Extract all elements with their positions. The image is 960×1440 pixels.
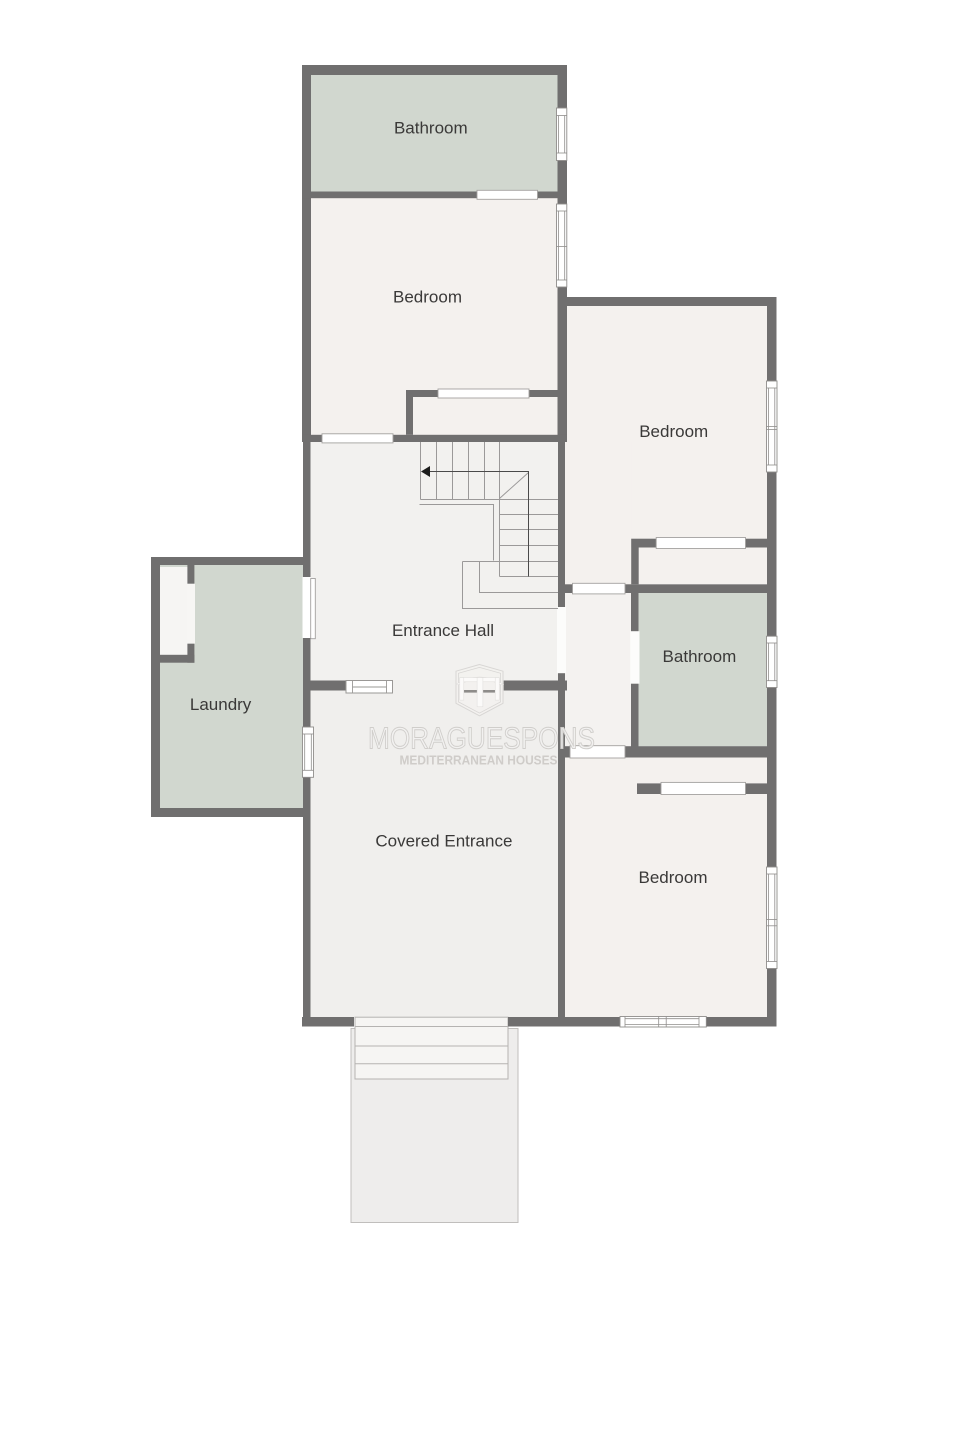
- svg-text:Laundry: Laundry: [190, 695, 252, 714]
- svg-text:Entrance Hall: Entrance Hall: [392, 621, 494, 640]
- svg-text:Bedroom: Bedroom: [639, 868, 708, 887]
- svg-text:MORAGUESPONS: MORAGUESPONS: [368, 721, 595, 756]
- svg-text:Bathroom: Bathroom: [663, 647, 737, 666]
- svg-text:MEDITERRANEAN HOUSES: MEDITERRANEAN HOUSES: [400, 754, 558, 768]
- svg-text:Bathroom: Bathroom: [394, 118, 468, 137]
- svg-text:Bedroom: Bedroom: [393, 288, 462, 307]
- svg-text:Covered Entrance: Covered Entrance: [375, 831, 512, 850]
- svg-text:Bedroom: Bedroom: [639, 422, 708, 441]
